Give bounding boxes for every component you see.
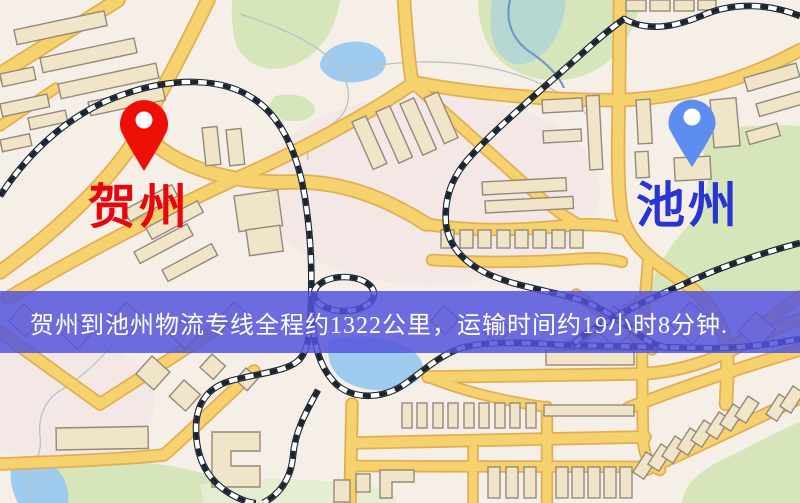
route-banner-text: 贺州到池州物流专线全程约1322公里，运输时间约19小时8分钟. — [30, 305, 728, 340]
destination-label: 池州 — [636, 178, 740, 233]
route-banner: 贺州到池州物流专线全程约1322公里，运输时间约19小时8分钟. — [0, 291, 800, 353]
map-canvas: 贺州 池州 — [0, 0, 800, 503]
map-screenshot: 贺州 池州 贺州到池州物流专线全程约1322公里，运输时间约19小时8分钟. — [0, 0, 800, 503]
origin-label: 贺州 — [88, 181, 190, 234]
